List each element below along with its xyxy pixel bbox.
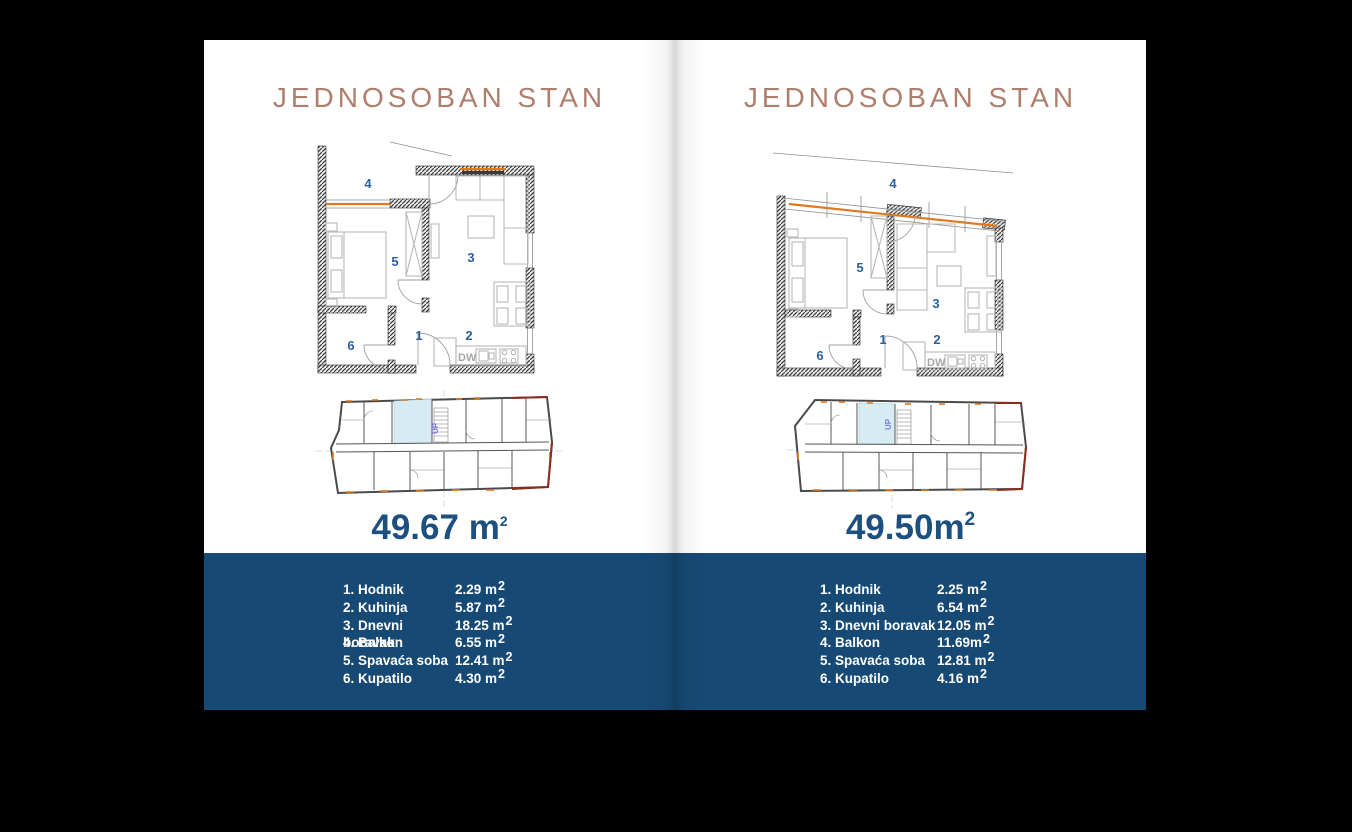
legend-label: 3. Dnevni boravak [820,617,937,635]
legend-label: 3. Dnevni boravak [343,617,455,635]
legend-row: 6. Kupatilo 4.16 m2 [820,670,995,688]
legend-label: 6. Kupatilo [820,670,937,688]
legend-row: 4. Balkon 6.55 m2 [343,634,513,652]
area-value: 49.67 [371,508,459,547]
legend-label: 2. Kuhinja [343,599,455,617]
legend-value: 4.30 m2 [455,670,505,688]
floor-plan-right: DW 1 2 3 4 5 6 [769,140,1029,390]
legend-row: 1. Hodnik 2.29 m2 [343,581,513,599]
legend-row: 1. Hodnik 2.25 m2 [820,581,995,599]
highlighted-unit [394,399,432,444]
tv-stand-icon [987,236,996,276]
room-legend: 1. Hodnik 2.29 m2 2. Kuhinja 5.87 m2 3. … [343,581,513,688]
legend-label: 4. Balkon [820,634,937,652]
plan-doors [829,214,917,369]
legend-label: 2. Kuhinja [820,599,937,617]
area-superscript: 2 [965,509,976,530]
legend-label: 1. Hodnik [820,581,937,599]
area-value: 49.50 [846,508,934,547]
legend-label: 1. Hodnik [343,581,455,599]
room-legend: 1. Hodnik 2.25 m2 2. Kuhinja 6.54 m2 3. … [820,581,995,688]
room-number-5: 5 [856,260,863,275]
coffee-table-icon [937,266,961,286]
room-number-2: 2 [465,328,472,343]
page-title: JEDNOSOBAN STAN [675,82,1146,114]
legend-value: 5.87 m2 [455,599,505,617]
legend-row: 5. Spavaća soba 12.41 m2 [343,652,513,670]
legend-row: 4. Balkon 11.69m2 [820,634,995,652]
legend-row: 6. Kupatilo 4.30 m2 [343,670,513,688]
legend-row: 2. Kuhinja 5.87 m2 [343,599,513,617]
coffee-table-icon [468,216,494,238]
brochure-spread: JEDNOSOBAN STAN [204,40,1146,710]
legend-label: 6. Kupatilo [343,670,455,688]
legend-value: 6.55 m2 [455,634,505,652]
plan-room-numbers: 1 2 3 4 5 6 [816,176,940,363]
page-title: JEDNOSOBAN STAN [204,82,675,114]
room-number-6: 6 [347,338,354,353]
legend-label: 5. Spavaća soba [343,652,455,670]
dining-table-icon [494,282,530,326]
dishwasher-label: DW [458,352,477,364]
floor-plan-left: DW 1 2 3 4 5 6 [298,140,558,390]
legend-label: 5. Spavaća soba [820,652,937,670]
room-number-4: 4 [889,176,897,191]
legend-value: 11.69m2 [937,634,990,652]
site-plan-right: UP [787,390,1037,508]
legend-row: 3. Dnevni boravak 12.05 m2 [820,617,995,635]
kitchen-cabinet-icon [434,338,456,366]
apartment-area: 49.67 m2 [204,508,675,548]
room-number-1: 1 [415,328,422,343]
legend-value: 6.54 m2 [937,599,987,617]
stairs-label: UP [884,418,893,430]
room-number-2: 2 [933,332,940,347]
legend-row: 2. Kuhinja 6.54 m2 [820,599,995,617]
legend-row: 3. Dnevni boravak 18.25 m2 [343,617,513,635]
bed-icon [789,238,847,308]
room-number-5: 5 [391,254,398,269]
building-outline [795,400,1026,491]
bed-icon [328,232,386,298]
dishwasher-label: DW [927,357,946,369]
area-unit: m [933,508,964,547]
page-left: JEDNOSOBAN STAN [204,40,675,710]
room-number-6: 6 [816,348,823,363]
site-plan-left: UP [316,390,566,508]
room-number-3: 3 [467,250,474,265]
kitchen-cabinet-icon [903,342,925,370]
room-number-3: 3 [932,296,939,311]
stairs-label: UP [431,422,440,434]
legend-label: 4. Balkon [343,634,455,652]
area-superscript: 2 [500,513,508,529]
tv-stand-icon [431,224,439,258]
sofa-icon [897,224,955,310]
apartment-area: 49.50m2 [675,508,1146,548]
legend-row: 5. Spavaća soba 12.81 m2 [820,652,995,670]
area-unit: m [459,508,500,547]
room-number-1: 1 [879,332,886,347]
legend-value: 4.16 m2 [937,670,987,688]
page-right: JEDNOSOBAN STAN [675,40,1146,710]
room-number-4: 4 [364,176,372,191]
